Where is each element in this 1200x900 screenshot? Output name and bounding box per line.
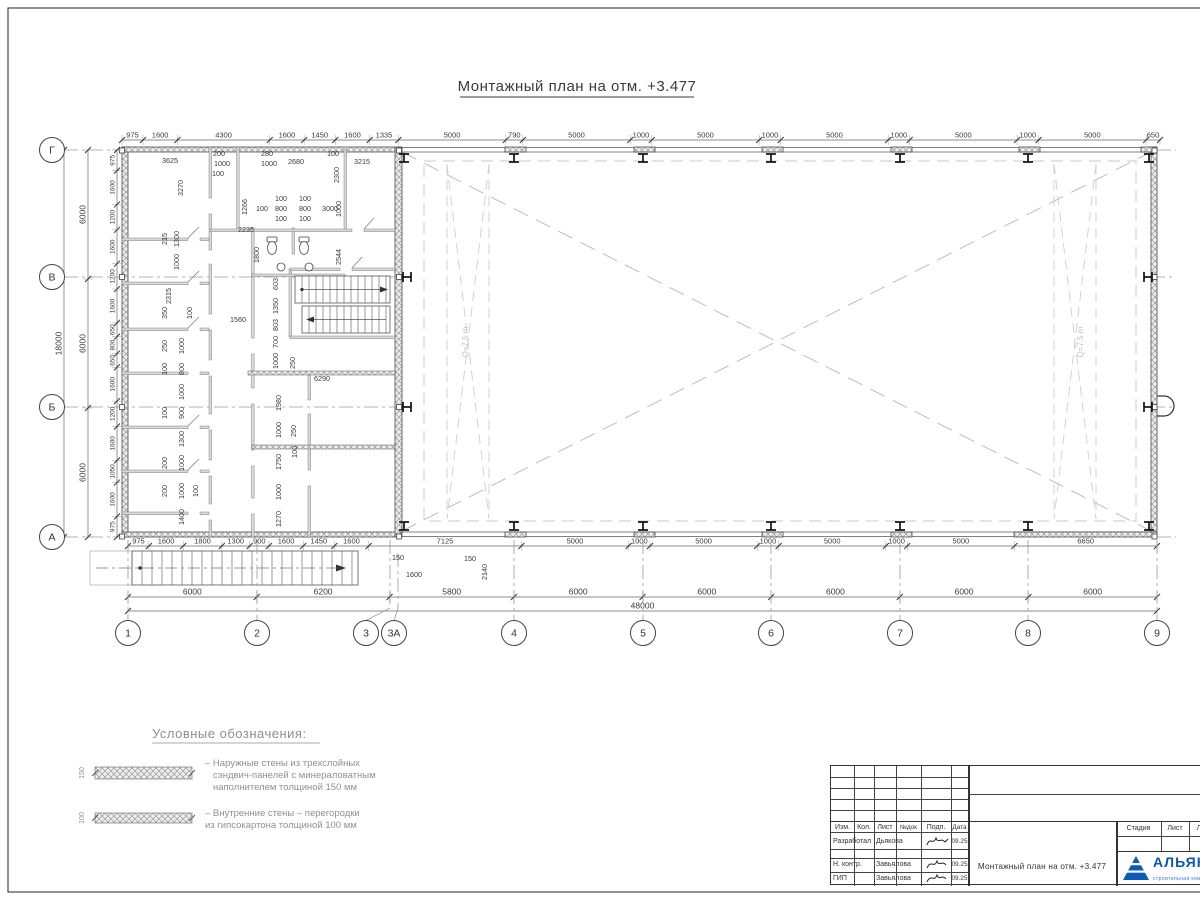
dimension-label: 1200 [110, 269, 117, 284]
dimension-label: 975 [110, 521, 117, 532]
dimension-label: 1750 [274, 454, 283, 470]
dimension-label: Q=7.5 m [461, 326, 470, 357]
dimension-label: 6650 [1077, 537, 1094, 546]
dimension-label: 1000 [274, 422, 283, 438]
dimension-label: 3А [388, 628, 401, 640]
dim-chain-left_inner: 9751600120016001200160065080065016001200… [110, 147, 123, 540]
axis-bubble-3А: 3А [382, 621, 407, 646]
dimension-label: 1600 [110, 492, 117, 507]
dimension-label: 1560 [230, 315, 246, 324]
dimension-label: 150 [392, 553, 404, 562]
exterior-staircase [90, 551, 358, 585]
dimension-label: 1350 [271, 298, 280, 314]
dimension-label: 6000 [183, 587, 202, 597]
tb-sheet: Лист [1161, 824, 1189, 833]
alliance-logo-icon [1123, 856, 1149, 880]
tb-name-gip: Завьялова [876, 874, 911, 883]
dimension-label: 7125 [437, 537, 454, 546]
dimension-label: 100 [256, 204, 268, 213]
legend-text: – Внутренние стены – перегородки [205, 808, 360, 819]
dimension-label: 3215 [354, 157, 370, 166]
dimension-label: 1800 [194, 537, 211, 546]
dimension-label: 1000 [177, 384, 186, 400]
legend-text: из гипсокартона толщиной 100 мм [205, 820, 357, 831]
dimension-label: 6000 [1083, 587, 1102, 597]
steel-column-icon [1023, 522, 1033, 530]
signature [925, 872, 949, 885]
dimension-label: 2300 [332, 167, 341, 183]
dimension-label: 900 [253, 537, 266, 546]
dimension-label: 1600 [110, 377, 117, 392]
dimension-label: 6200 [314, 587, 333, 597]
sink-icon [277, 263, 285, 271]
dimension-label: 6000 [78, 334, 88, 353]
dimension-label: 100 [160, 407, 169, 419]
dimension-label: 1800 [252, 247, 261, 263]
dimension-label: 1050 [110, 464, 117, 479]
dimension-label: 200 [160, 485, 169, 497]
legend-thickness-150: 150 [79, 767, 86, 779]
legend-thickness-100: 100 [79, 812, 86, 824]
dimension-label: Г [49, 145, 55, 157]
dimension-label: 1335 [376, 131, 393, 140]
tb-role-gip: ГИП [833, 874, 847, 883]
dimension-label: 650 [1147, 131, 1160, 140]
dimension-label: 5000 [955, 131, 972, 140]
dimension-label: 5000 [695, 537, 712, 546]
dim-chain-bottom1: 9751600180013009001600145016007125500010… [125, 537, 1160, 552]
legend-swatch-exterior-wall [95, 767, 192, 779]
drawing-title: Монтажный план на отм. +3.477 [458, 78, 697, 95]
dimension-label: 3625 [162, 156, 178, 165]
dimension-label: 2680 [288, 157, 304, 166]
dimension-label: 5000 [826, 131, 843, 140]
dimension-label: 1980 [274, 395, 283, 411]
dimension-label: 1600 [152, 131, 169, 140]
dimension-label: 1200 [110, 210, 117, 225]
dimension-label: 100 [299, 194, 311, 203]
dimension-label: 6 [768, 628, 774, 640]
steel-column-icon [403, 402, 411, 412]
dimension-label: 700 [271, 336, 280, 348]
steel-column-icon [509, 522, 519, 530]
dimension-label: 4 [511, 628, 517, 640]
tb-col-list: Лист [874, 823, 896, 832]
dimension-label: 200 [213, 149, 225, 158]
dimension-label: 100 [275, 214, 287, 223]
dimension-label: 8 [1025, 628, 1031, 640]
dimension-label: 1000 [172, 254, 181, 270]
dimension-label: 5000 [1084, 131, 1101, 140]
logo-name: АЛЬЯНС [1153, 858, 1200, 867]
dimension-label: 1000 [633, 131, 650, 140]
dimension-label: 5000 [953, 537, 970, 546]
dimension-label: 800 [110, 339, 117, 350]
axis-bubble-А: А [40, 525, 65, 550]
tb-role-ncontrol: Н. контр. [833, 860, 862, 869]
dimension-label: 1000 [334, 201, 343, 217]
signature [925, 858, 949, 871]
tb-role-developer: Разработал [833, 837, 871, 846]
dimension-label: 5000 [568, 131, 585, 140]
tb-date-developer: 09.25 [951, 837, 968, 846]
dimension-label: 1270 [274, 511, 283, 527]
dimension-label: Q=7.5 m [1076, 326, 1085, 357]
dimension-label: 1000 [271, 353, 280, 369]
dimension-label: 6000 [569, 587, 588, 597]
signature [925, 834, 949, 848]
tb-col-kol: Кол. [854, 823, 874, 832]
dimension-label: 1600 [406, 570, 422, 579]
dimension-label: 800 [177, 363, 186, 375]
dimension-label: 200 [160, 457, 169, 469]
dimension-label: 150 [464, 554, 476, 563]
dimension-label: 5800 [442, 587, 461, 597]
dimension-label: 1000 [177, 338, 186, 354]
tb-col-ndoc: №док [896, 823, 921, 832]
dimension-label: 975 [110, 155, 117, 166]
axis-bubble-6: 6 [759, 621, 784, 646]
dimension-label: 650 [110, 355, 117, 366]
dimension-label: 1600 [110, 436, 117, 451]
dimension-label: 250 [289, 425, 298, 437]
dimension-label: 4300 [215, 131, 232, 140]
dimension-label: 1300 [177, 431, 186, 447]
legend-title: Условные обозначения: [152, 726, 307, 741]
legend-text: сэндвич-панелей с минераловатным [213, 770, 376, 781]
internal-staircase [295, 276, 390, 333]
dimension-label: 1600 [110, 239, 117, 254]
dimension-label: 215 [160, 233, 169, 245]
tb-date-ncontrol: 09.25 [951, 860, 968, 869]
dimension-label: 1000 [177, 483, 186, 499]
dimension-label: 2235 [238, 225, 254, 234]
axis-bubble-4: 4 [502, 621, 527, 646]
dimension-label: 1000 [762, 131, 779, 140]
dimension-label: В [48, 272, 55, 284]
dimension-label: 790 [508, 131, 521, 140]
toilet-fixtures [267, 237, 313, 271]
dimension-label: 1600 [279, 131, 296, 140]
dimension-label: 5000 [567, 537, 584, 546]
dimension-label: 2315 [164, 288, 173, 304]
dimension-label: 350 [160, 307, 169, 319]
dimension-label: 100 [290, 446, 299, 458]
axis-bubble-Б: Б [40, 395, 65, 420]
dimension-label: 1200 [110, 406, 117, 421]
axis-bubble-Г: Г [40, 138, 65, 163]
dimension-label: 1000 [274, 484, 283, 500]
tb-name-ncontrol: Завьялова [876, 860, 911, 869]
dimension-label: 1600 [278, 537, 295, 546]
dimension-label: 1450 [310, 537, 327, 546]
dimension-label: 250 [160, 340, 169, 352]
dimension-label: 800 [299, 204, 311, 213]
dimension-label: 1 [125, 628, 131, 640]
steel-column-icon [403, 272, 411, 282]
legend-swatch-interior-wall [95, 813, 192, 823]
hall-dashed-outline [402, 152, 1151, 531]
dimension-label: 1000 [214, 159, 230, 168]
dimension-label: 1400 [177, 509, 186, 525]
tb-col-data: Дата [951, 823, 968, 832]
dimension-label: 1300 [172, 231, 181, 247]
dim-chain-bottom_total: 48000 [125, 601, 1160, 617]
tb-name-developer: Дьякова [876, 837, 903, 846]
logo-subtitle: строительная компания [1153, 875, 1200, 884]
dimension-label: 1000 [888, 537, 905, 546]
dimension-label: 9 [1154, 628, 1160, 640]
dimension-label: 100 [185, 307, 194, 319]
dimension-label: 650 [110, 324, 117, 335]
dimension-label: 100 [275, 194, 287, 203]
dimension-label: 6290 [314, 374, 330, 383]
dimension-label: А [48, 532, 55, 544]
dimension-label: 1000 [760, 537, 777, 546]
title-block: Изм. Кол. Лист №док Подп. Дата Разработа… [830, 765, 1200, 885]
steel-column-icon [638, 522, 648, 530]
tb-col-izm: Изм. [831, 823, 854, 832]
axis-bubble-1: 1 [116, 621, 141, 646]
dimension-label: 100 [327, 149, 339, 158]
dimension-label: 1000 [177, 455, 186, 471]
dimension-label: 1450 [311, 131, 328, 140]
dimension-label: 1266 [240, 199, 249, 215]
dimension-label: 800 [275, 204, 287, 213]
steel-column-icon [895, 522, 905, 530]
dimension-label: 975 [126, 131, 139, 140]
legend-text: – Наружные стены из трехслойных [205, 758, 360, 769]
dimension-label: 2544 [334, 249, 343, 265]
sink-icon [305, 263, 313, 271]
dimension-label: 100 [160, 363, 169, 375]
dimension-label: 7 [897, 628, 903, 640]
tb-sheets-total: Листов [1189, 824, 1200, 833]
dimension-label: 5000 [697, 131, 714, 140]
dimension-label: 1000 [261, 159, 277, 168]
dimension-label: 100 [191, 485, 200, 497]
axis-bubble-8: 8 [1016, 621, 1041, 646]
dimension-label: 900 [177, 407, 186, 419]
tb-date-gip: 09.25 [951, 874, 968, 883]
dimension-label: 6000 [826, 587, 845, 597]
steel-column-icon [766, 522, 776, 530]
dimension-label: 2140 [480, 564, 489, 580]
dimension-label: 6000 [78, 205, 88, 224]
dimension-label: 5000 [444, 131, 461, 140]
dimension-label: 18000 [54, 331, 64, 355]
dimension-label: 2 [254, 628, 260, 640]
sheet-frame [8, 8, 1200, 892]
dimension-label: 1000 [631, 537, 648, 546]
dimension-label: 1600 [343, 537, 360, 546]
dim-chain-left_outer: 600060006000 [78, 147, 94, 540]
dimension-label: 1000 [1019, 131, 1036, 140]
legend: Условные обозначения: 150 – Наружные сте… [79, 726, 376, 831]
axis-bubble-7: 7 [888, 621, 913, 646]
axis-bubble-5: 5 [631, 621, 656, 646]
tb-doc-title: Монтажный план на отм. +3.477 [971, 862, 1113, 871]
dimension-label: 1600 [344, 131, 361, 140]
dim-chain-top: 9751600430016001450160013355000790500010… [119, 131, 1163, 146]
dimension-label: 1600 [158, 537, 175, 546]
dimension-label: 1600 [110, 180, 117, 195]
crane-brace-right [1054, 164, 1096, 519]
dimension-label: 5000 [824, 537, 841, 546]
axis-bubble-2: 2 [245, 621, 270, 646]
dimension-label: 6000 [697, 587, 716, 597]
axis-bubble-В: В [40, 265, 65, 290]
dimension-label: 3 [363, 628, 369, 640]
dimension-label: 1600 [110, 298, 117, 313]
axis-grid-lines [64, 150, 1176, 537]
dimension-label: 250 [288, 357, 297, 369]
tb-stage: Стадия [1116, 824, 1161, 833]
dimension-label: 1300 [227, 537, 244, 546]
dim-chain-left_total: 18000 [54, 147, 70, 540]
dimension-label: 6000 [78, 463, 88, 482]
dimension-label: 6000 [955, 587, 974, 597]
dimension-label: 5 [640, 628, 646, 640]
axis-bubble-3: 3 [354, 621, 379, 646]
tb-col-podp: Подп. [921, 823, 951, 832]
dimension-label: 603 [271, 278, 280, 290]
legend-text: наполнителем толщиной 150 мм [213, 782, 357, 793]
dimension-label: 280 [261, 149, 273, 158]
dimension-label: 1000 [891, 131, 908, 140]
dimension-label: 803 [271, 319, 280, 331]
hoist-symbol [1157, 396, 1174, 416]
dimension-label: 3270 [176, 180, 185, 196]
dimension-label: Б [49, 402, 56, 414]
axis-bubble-9: 9 [1145, 621, 1170, 646]
drawing-sheet: Монтажный план на отм. +3.477 [0, 0, 1200, 900]
dimension-label: 975 [132, 537, 145, 546]
dimension-label: 100 [299, 214, 311, 223]
dimension-label: 100 [212, 169, 224, 178]
